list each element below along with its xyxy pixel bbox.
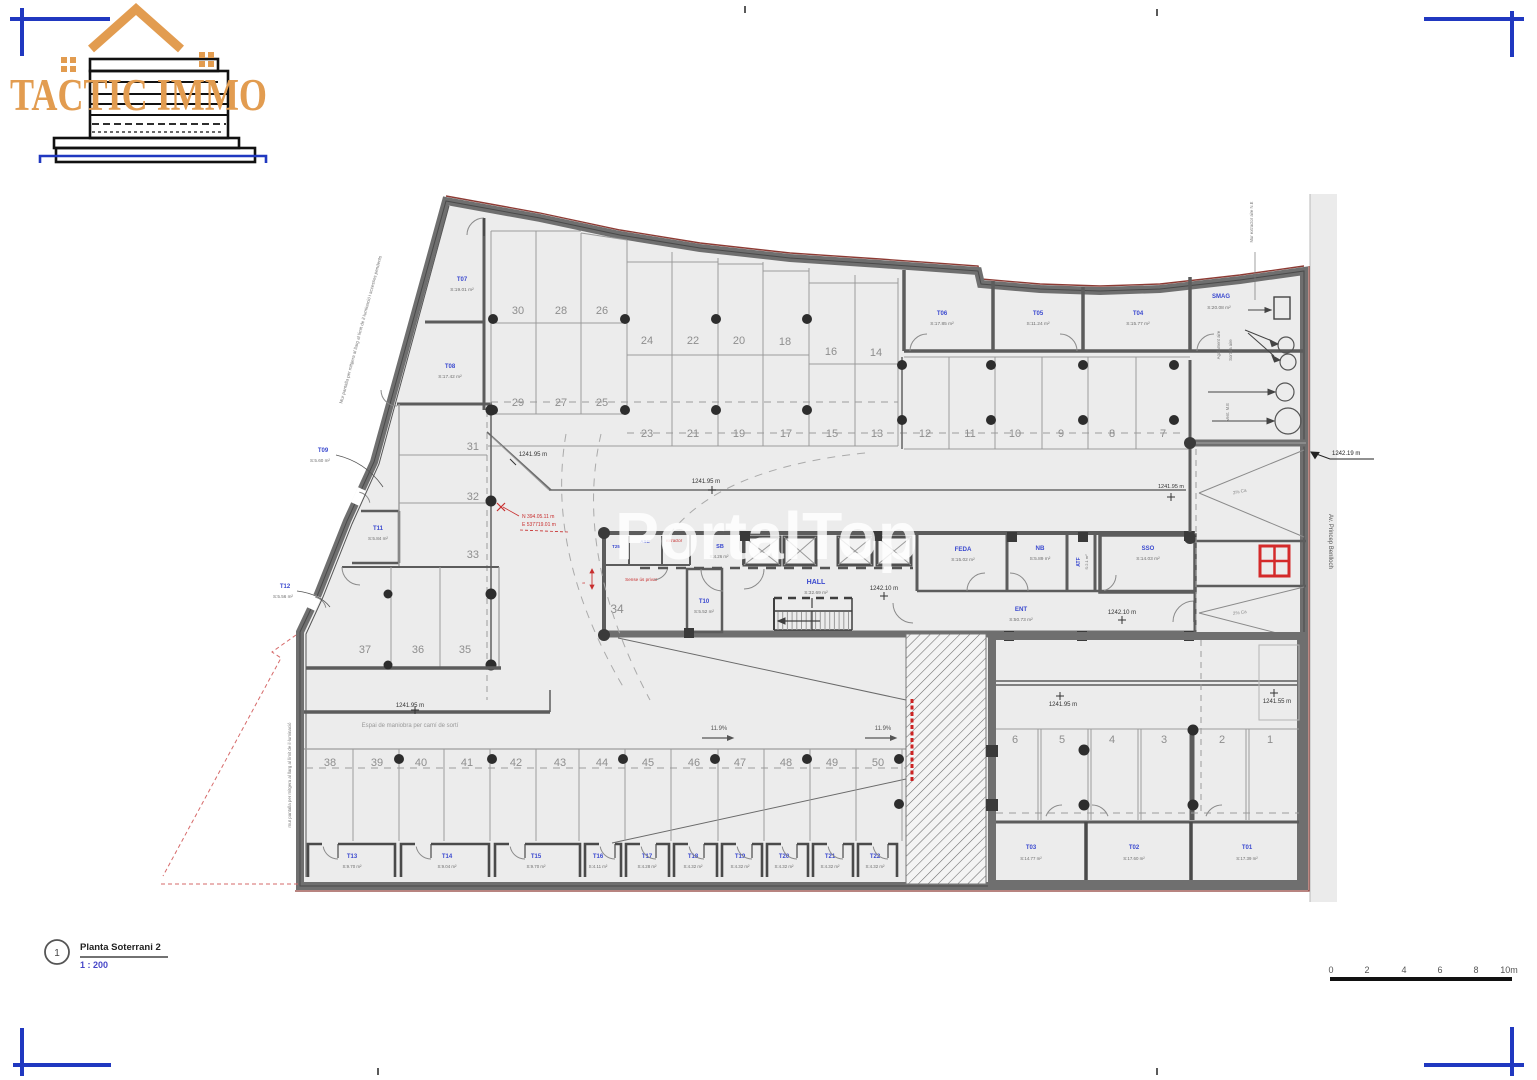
svg-text:S:9.70 m²: S:9.70 m² bbox=[342, 864, 362, 869]
svg-text:E 537719.01 m: E 537719.01 m bbox=[522, 522, 556, 528]
svg-text:47: 47 bbox=[734, 757, 746, 769]
svg-text:Espai de maniobra per camí de: Espai de maniobra per camí de sortí bbox=[362, 723, 459, 729]
svg-text:1241.55 m: 1241.55 m bbox=[1263, 699, 1291, 705]
svg-text:12: 12 bbox=[919, 428, 931, 440]
svg-text:14: 14 bbox=[870, 347, 882, 359]
svg-text:T01: T01 bbox=[1242, 845, 1253, 851]
svg-text:SMAG: SMAG bbox=[1212, 294, 1230, 300]
svg-text:44: 44 bbox=[596, 757, 608, 769]
svg-text:S:17.42 m²: S:17.42 m² bbox=[438, 374, 462, 380]
svg-text:6: 6 bbox=[1437, 965, 1442, 975]
svg-text:32: 32 bbox=[467, 491, 479, 503]
svg-text:S:4.32 m²: S:4.32 m² bbox=[865, 864, 885, 869]
svg-text:1: 1 bbox=[1267, 734, 1273, 746]
svg-text:T08: T08 bbox=[445, 364, 456, 370]
svg-text:Mur extractor aire N.E: Mur extractor aire N.E bbox=[1249, 201, 1254, 242]
svg-text:S:4.32 m²: S:4.32 m² bbox=[683, 864, 703, 869]
svg-text:26: 26 bbox=[596, 305, 608, 317]
svg-text:T10: T10 bbox=[699, 599, 710, 605]
svg-text:NB: NB bbox=[1036, 545, 1045, 552]
svg-text:1241.95 m: 1241.95 m bbox=[1049, 702, 1077, 708]
svg-text:22: 22 bbox=[687, 335, 699, 347]
svg-text:S:17.39 m²: S:17.39 m² bbox=[1236, 856, 1258, 861]
svg-text:4: 4 bbox=[1109, 734, 1115, 746]
svg-text:S:17.60 m²: S:17.60 m² bbox=[1123, 856, 1145, 861]
svg-text:ENT: ENT bbox=[1015, 606, 1028, 613]
svg-text:S:4.32 m²: S:4.32 m² bbox=[820, 864, 840, 869]
svg-text:24: 24 bbox=[641, 335, 653, 347]
svg-text:45: 45 bbox=[642, 757, 654, 769]
svg-text:1241.95 m: 1241.95 m bbox=[396, 703, 424, 709]
svg-text:13: 13 bbox=[871, 428, 883, 440]
svg-text:42: 42 bbox=[510, 757, 522, 769]
svg-text:11.9%: 11.9% bbox=[875, 726, 892, 732]
svg-text:11: 11 bbox=[964, 428, 975, 440]
svg-text:19: 19 bbox=[733, 428, 745, 440]
svg-text:1: 1 bbox=[54, 948, 60, 959]
svg-text:S:4.11 m²: S:4.11 m² bbox=[589, 864, 608, 869]
svg-text:21: 21 bbox=[687, 428, 699, 440]
svg-text:48: 48 bbox=[780, 757, 792, 769]
svg-text:1241.95 m: 1241.95 m bbox=[692, 479, 720, 485]
svg-text:S:4.28 m²: S:4.28 m² bbox=[637, 864, 657, 869]
svg-text:29: 29 bbox=[512, 397, 524, 409]
svg-text:PortalTop: PortalTop bbox=[615, 499, 918, 574]
svg-text:9: 9 bbox=[1058, 428, 1064, 440]
svg-text:28: 28 bbox=[555, 305, 567, 317]
svg-text:T16: T16 bbox=[593, 854, 604, 860]
svg-text:S:15.02 m²: S:15.02 m² bbox=[951, 557, 975, 563]
svg-text:1242.19 m: 1242.19 m bbox=[1332, 451, 1360, 457]
svg-text:T21: T21 bbox=[825, 854, 836, 860]
svg-text:41: 41 bbox=[461, 757, 473, 769]
svg-text:1241.95 m: 1241.95 m bbox=[519, 452, 547, 458]
svg-text:8: 8 bbox=[1473, 965, 1478, 975]
svg-text:T20: T20 bbox=[779, 854, 790, 860]
svg-text:43: 43 bbox=[554, 757, 566, 769]
svg-text:Sense ús privat: Sense ús privat bbox=[625, 577, 657, 582]
svg-text:3: 3 bbox=[1161, 734, 1167, 746]
svg-text:7: 7 bbox=[1160, 428, 1166, 440]
svg-text:S:5.60 m²: S:5.60 m² bbox=[310, 458, 330, 463]
svg-text:23: 23 bbox=[641, 428, 653, 440]
svg-text:17: 17 bbox=[780, 428, 792, 440]
svg-text:35: 35 bbox=[459, 644, 471, 656]
svg-text:S:4.32 m²: S:4.32 m² bbox=[730, 864, 750, 869]
svg-text:Planta Soterrani 2: Planta Soterrani 2 bbox=[80, 942, 161, 953]
svg-text:HALL: HALL bbox=[807, 579, 826, 586]
svg-text:mur pantalla per mitgera al ll: mur pantalla per mitgera al llarg al lím… bbox=[287, 722, 292, 827]
svg-text:1241.95 m: 1241.95 m bbox=[1158, 484, 1184, 490]
svg-text:T04: T04 bbox=[1133, 311, 1144, 317]
svg-text:Agafament aire: Agafament aire bbox=[1216, 330, 1221, 359]
svg-text:S:14.77 m²: S:14.77 m² bbox=[1020, 856, 1042, 861]
svg-text:SSO: SSO bbox=[1142, 546, 1155, 552]
svg-text:20: 20 bbox=[733, 335, 745, 347]
svg-text:S:19.01 m²: S:19.01 m² bbox=[450, 287, 474, 293]
svg-text:46: 46 bbox=[688, 757, 700, 769]
svg-text:30: 30 bbox=[512, 305, 524, 317]
svg-text:4: 4 bbox=[1401, 965, 1406, 975]
svg-text:S:20.08 m²: S:20.08 m² bbox=[1207, 305, 1231, 311]
svg-text:TACTIC IMMO: TACTIC IMMO bbox=[10, 70, 267, 120]
svg-text:S:14.03 m²: S:14.03 m² bbox=[1136, 556, 1160, 562]
svg-text:33: 33 bbox=[467, 549, 479, 561]
svg-text:S:11.24 m²: S:11.24 m² bbox=[1026, 321, 1050, 327]
svg-text:1 : 200: 1 : 200 bbox=[80, 960, 108, 970]
svg-text:S:5.56 m²: S:5.56 m² bbox=[273, 594, 293, 599]
svg-text:10: 10 bbox=[1009, 428, 1021, 440]
svg-text:T05: T05 bbox=[1033, 311, 1044, 317]
svg-text:18: 18 bbox=[779, 336, 791, 348]
svg-text:S:5.89 m²: S:5.89 m² bbox=[1030, 556, 1051, 562]
svg-text:S:17.85 m²: S:17.85 m² bbox=[930, 321, 954, 327]
svg-text:2: 2 bbox=[1364, 965, 1369, 975]
svg-text:T15: T15 bbox=[531, 854, 542, 860]
svg-text:40: 40 bbox=[415, 757, 427, 769]
svg-text:S:5.84 m²: S:5.84 m² bbox=[368, 536, 388, 541]
svg-text:T11: T11 bbox=[373, 526, 384, 532]
svg-text:T03: T03 bbox=[1026, 845, 1037, 851]
svg-text:36: 36 bbox=[412, 644, 424, 656]
svg-text:39: 39 bbox=[371, 757, 383, 769]
svg-text:1242.10 m: 1242.10 m bbox=[1108, 610, 1136, 616]
svg-text:0: 0 bbox=[1328, 965, 1333, 975]
svg-text:Av. Princep Benlloch: Av. Princep Benlloch bbox=[1327, 514, 1333, 569]
svg-text:S:4.32 m²: S:4.32 m² bbox=[774, 864, 794, 869]
svg-text:Sortida aire: Sortida aire bbox=[1228, 339, 1233, 361]
svg-text:31: 31 bbox=[467, 441, 479, 453]
svg-text:16: 16 bbox=[825, 346, 837, 358]
svg-text:T13: T13 bbox=[347, 854, 358, 860]
svg-text:1242.10 m: 1242.10 m bbox=[870, 586, 898, 592]
svg-text:T09: T09 bbox=[318, 448, 329, 454]
svg-text:10m: 10m bbox=[1500, 965, 1518, 975]
svg-text:2: 2 bbox=[1219, 734, 1225, 746]
svg-text:25: 25 bbox=[596, 397, 608, 409]
svg-text:50: 50 bbox=[872, 757, 884, 769]
svg-text:S:9.04 m²: S:9.04 m² bbox=[437, 864, 457, 869]
svg-text:N 394.05.11 m: N 394.05.11 m bbox=[522, 514, 554, 520]
svg-text:T02: T02 bbox=[1129, 845, 1140, 851]
svg-text:15: 15 bbox=[826, 428, 838, 440]
svg-text:T06: T06 bbox=[937, 311, 948, 317]
svg-text:T17: T17 bbox=[642, 854, 653, 860]
svg-text:T14: T14 bbox=[442, 854, 453, 860]
svg-text:FEDA: FEDA bbox=[955, 546, 972, 553]
svg-text:5: 5 bbox=[1059, 734, 1065, 746]
svg-text:S:32.69 m²: S:32.69 m² bbox=[804, 590, 828, 596]
svg-text:S:9.70 m²: S:9.70 m² bbox=[526, 864, 546, 869]
svg-text:S:2.1 m²: S:2.1 m² bbox=[1084, 554, 1089, 570]
svg-text:T22: T22 bbox=[870, 854, 881, 860]
svg-text:8: 8 bbox=[1109, 428, 1115, 440]
svg-text:S:5.52 m²: S:5.52 m² bbox=[694, 609, 714, 614]
svg-text:Vent. M.E: Vent. M.E bbox=[1225, 403, 1230, 421]
svg-text:37: 37 bbox=[359, 644, 371, 656]
svg-text:27: 27 bbox=[555, 397, 567, 409]
svg-text:11.9%: 11.9% bbox=[711, 726, 728, 732]
svg-text:S:15.77 m²: S:15.77 m² bbox=[1126, 321, 1150, 327]
svg-text:T12: T12 bbox=[280, 584, 291, 590]
svg-text:ATF: ATF bbox=[1076, 557, 1082, 566]
svg-text:S:50.73 m²: S:50.73 m² bbox=[1009, 617, 1033, 623]
svg-text:49: 49 bbox=[826, 757, 838, 769]
svg-text:38: 38 bbox=[324, 757, 336, 769]
svg-text:6: 6 bbox=[1012, 734, 1018, 746]
svg-text:T07: T07 bbox=[457, 277, 468, 283]
